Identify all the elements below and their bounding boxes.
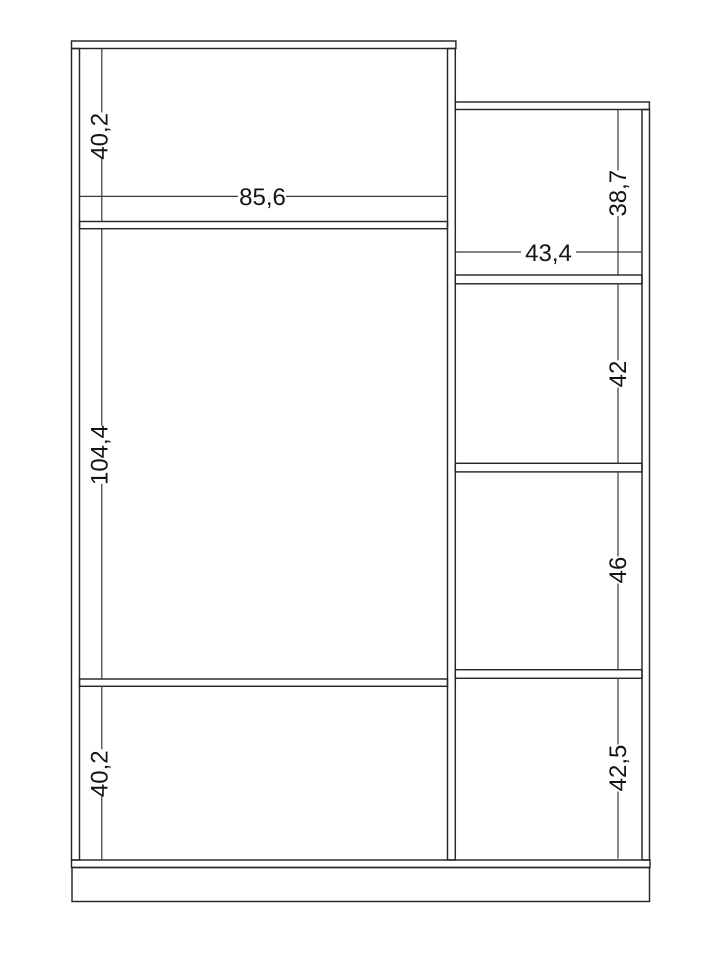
svg-text:85,6: 85,6: [239, 184, 286, 211]
svg-text:38,7: 38,7: [605, 170, 632, 217]
svg-text:42,5: 42,5: [605, 745, 632, 792]
svg-text:42: 42: [605, 361, 632, 388]
svg-text:40,2: 40,2: [86, 750, 113, 797]
svg-text:43,4: 43,4: [525, 240, 572, 267]
svg-text:104,4: 104,4: [86, 425, 113, 485]
svg-text:40,2: 40,2: [86, 113, 113, 160]
svg-text:46: 46: [605, 557, 632, 584]
